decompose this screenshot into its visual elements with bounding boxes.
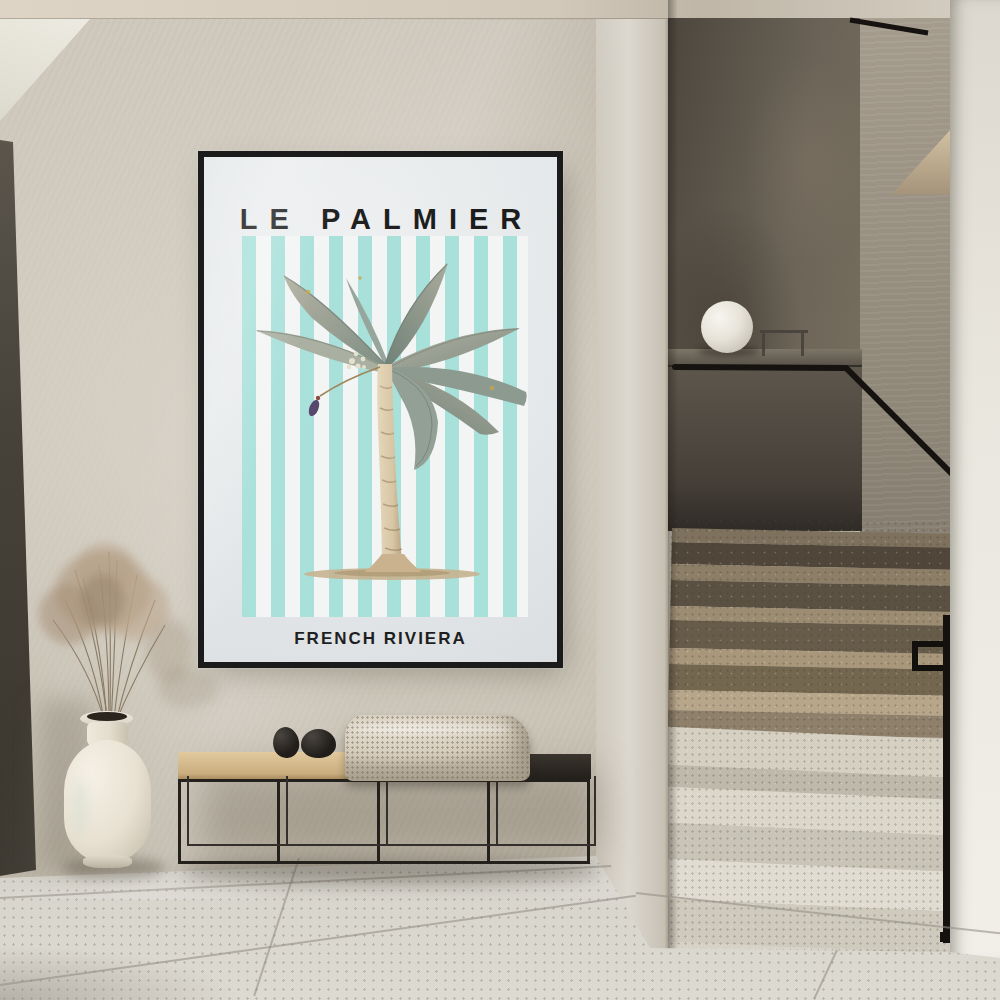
bench-front-rail [178, 861, 590, 864]
blanket-fold [352, 724, 512, 734]
bench-leg [178, 779, 181, 864]
bud-collar [316, 396, 320, 400]
palm-tree-illustration [242, 236, 528, 617]
poster-title: LE PALMIER [204, 203, 557, 236]
grass-plumes [39, 544, 169, 644]
leaf-accent [490, 386, 494, 390]
flower-stem [320, 367, 380, 396]
bench-back-leg [187, 776, 189, 846]
stair-handrail [675, 367, 952, 474]
foreground-wall [950, 0, 1000, 962]
striped-background [242, 236, 528, 617]
bench-back-leg [286, 776, 288, 846]
leaf-accent [358, 276, 362, 280]
corner-wall [596, 19, 668, 952]
bench-leg [587, 779, 590, 864]
stairwell-jamb-shadow [668, 0, 678, 958]
staircase [668, 0, 952, 958]
poster-subtitle: FRENCH RIVIERA [204, 629, 557, 649]
decorative-stone [301, 729, 336, 758]
bench-back-rail [187, 844, 595, 846]
bench-leg [377, 779, 380, 864]
bench-back-leg [386, 776, 388, 846]
vase-reflection [72, 780, 88, 836]
dried-pampas-grass [25, 530, 185, 730]
bench-back-leg [594, 776, 596, 846]
vase-foot [83, 855, 132, 868]
trunk-base [364, 554, 422, 572]
vase-mouth [87, 712, 127, 721]
leaf-accent [306, 290, 310, 294]
framed-poster: LE PALMIER [198, 151, 563, 668]
bench-leg [277, 779, 280, 864]
bench-leg [487, 779, 490, 864]
upper-handrail [850, 20, 928, 33]
banana-flower-bud [307, 398, 322, 417]
handrail [668, 0, 952, 958]
bench-back-leg [496, 776, 498, 846]
hallway-scene: LE PALMIER [0, 0, 1000, 1000]
